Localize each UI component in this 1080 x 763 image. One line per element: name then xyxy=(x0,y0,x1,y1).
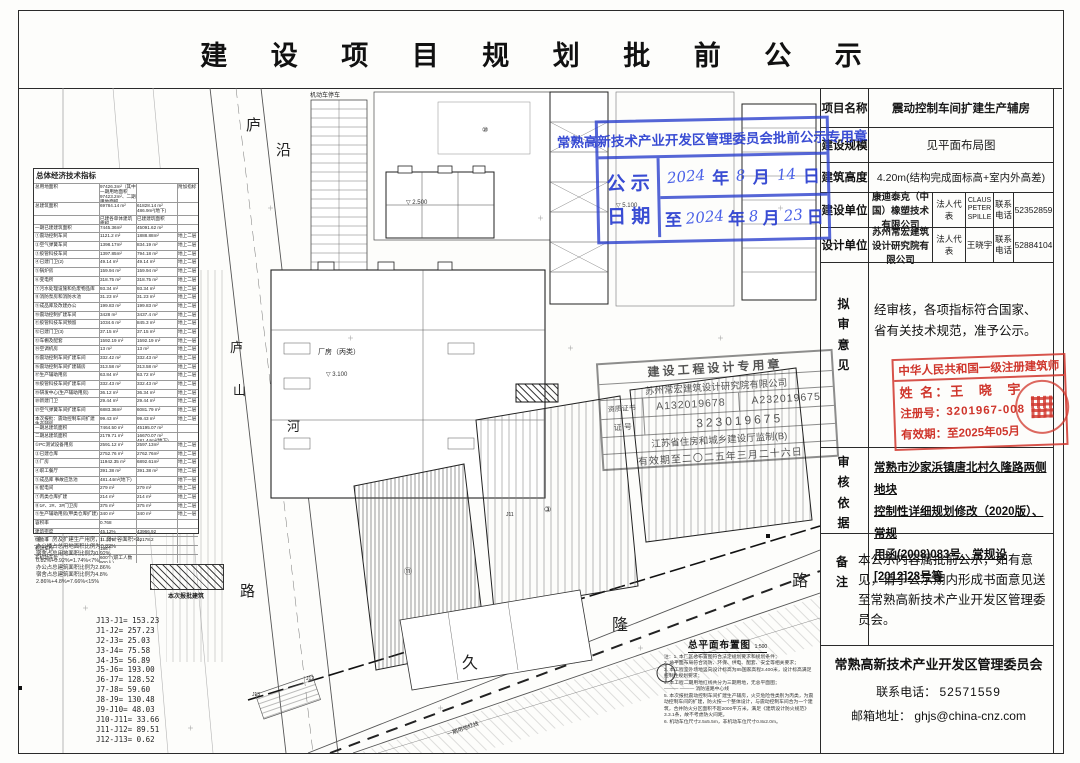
footer-tel-label: 联系电话： xyxy=(876,685,936,699)
stats-note-line: 办公楼占总用地面积比例为0.82% xyxy=(36,544,188,551)
j11-label: J11 xyxy=(506,512,514,518)
stats-row: ⑪胶管科技车间预留 1034.6 m² 845.3 m² 地上二层 xyxy=(34,319,198,328)
blue-stamp-label-line1: 公 示 xyxy=(599,168,658,196)
blue-stamp-date-from: 2024 年 8 月 14 日 xyxy=(660,155,828,199)
date1-month-unit: 月 xyxy=(752,162,770,187)
stats-row: ⑭空调机房 13 m² 13 m² 地上二层 xyxy=(34,345,198,354)
new-building-hatched xyxy=(516,384,558,402)
boundary-segment: J13-J1= 153.23 xyxy=(96,616,159,626)
date2-year-unit: 年 xyxy=(728,204,746,229)
date2-day: 23 xyxy=(783,206,804,226)
building-number-3: ③ xyxy=(544,505,551,514)
stats-row: ⑤锅炉房 159.94 m² 159.94 m² 地上二层 xyxy=(34,267,198,276)
architect-valid: 至2025年05月 xyxy=(947,422,1020,441)
panel-footer: 常熟高新技术产业开发区管理委员会 联系电话： 52571559 邮箱地址： gh… xyxy=(824,654,1053,724)
boundary-segment: J5-J6= 193.00 xyxy=(96,665,159,675)
project-name-value: 震动控制车间扩建生产辅房 xyxy=(869,88,1053,127)
panel-row-line xyxy=(820,645,1053,646)
stats-table: 总体经济技术指标 总用地面积 97426.3m²（其中一期用地面积97423.2… xyxy=(33,168,199,534)
stats-row: ⑥变电所 318.75 m² 318.75 m² 地上二层 xyxy=(34,276,198,285)
stats-row: 一期已建建筑面积 7445.36m² 45091.62 m² xyxy=(34,224,198,233)
designer-rep-name: 王晓宇 xyxy=(966,227,993,262)
stats-row: ③厂房 11942.35 m² 6892.61m² 地上二层 xyxy=(34,458,198,467)
stats-row: ②已建仓库 2752.76 m² 2762.76m² 地上二层 xyxy=(34,450,198,459)
date1-year-unit: 年 xyxy=(712,163,730,188)
stats-note-line: 注：厂房及扩建生产用房，厂房计容面积×2， xyxy=(36,537,188,544)
plan-notes: 注：1. 本厂区总布置图符合法定规划要求和规划条件；2. 总平面布局符合消防、环… xyxy=(664,655,816,726)
architect-name: 王 晓 宇 xyxy=(950,378,1027,400)
architect-name-label: 姓 名： xyxy=(899,381,950,402)
review-section-label: 拟审意见 xyxy=(836,294,851,376)
architect-no: 3201967-008 xyxy=(946,403,1025,418)
basis-line: 控制性详细规划修改（2020版）、常规 xyxy=(874,502,1052,546)
spot-elevation-3100: ▽ 3.100 xyxy=(326,372,348,378)
stats-row: 二期总建筑面积 2179.71 m² 16670.07 m² 481.44m²(… xyxy=(34,432,198,441)
stats-note-line: 宿舍占总用地面积比例为0.92% xyxy=(36,551,188,558)
stats-row: ⑦污水处理设施和危废物品库 93.34 m² 93.34 m² 地上二层 xyxy=(34,285,198,294)
footer-org: 常熟高新技术产业开发区管理委员会 xyxy=(824,654,1053,673)
boundary-segment: J9-J10= 48.03 xyxy=(96,705,159,715)
stats-title: 总体经济技术指标 xyxy=(34,169,198,183)
plan-note-line: 3. 本工程室外场地竖向设计标高为85国家高程3.400米，设计标高满足控制性规… xyxy=(664,668,816,681)
designer-tel: 52884104 xyxy=(1014,227,1053,262)
builder-company: 康迪泰克（中国）橡塑技术有限公司 xyxy=(869,192,932,227)
stats-row: ⑧消防泵房和消防水池 31.23 m² 31.23 m² 地上二层 xyxy=(34,293,198,302)
factory-label: 厂房（丙类） xyxy=(318,347,360,356)
boundary-segment: J2-J3= 25.03 xyxy=(96,636,159,646)
plan-title: 总平面布置图 1:500 xyxy=(688,637,767,653)
stats-row: ④职工餐厅 391.38 m² 391.38 m² 地上二层 xyxy=(34,467,198,476)
stats-row: 一期总建筑面积 7464.50 m² 45195.07 m² xyxy=(34,424,198,433)
road-char-long: 隆 xyxy=(612,616,628,634)
review-text: 经审核，各项指标符合国家、省有关技术规范，准予公示。 xyxy=(874,300,1046,341)
stats-row: ⑱胶管科技车间扩建车间 332.43 m² 332.43 m² 地上二层 xyxy=(34,380,198,389)
date2-year: 2024 xyxy=(685,206,725,227)
stats-row: ①震动控制车间 1121.2 m² 1888.88m² 地上二层 xyxy=(34,232,198,241)
road-char-yan: 沿 xyxy=(276,142,291,159)
stats-row: ⑲研发中心(生产辅助用房) 36.12 m² 36.34 m² 地上二层 xyxy=(34,389,198,398)
page-title: 建 设 项 目 规 划 批 前 公 示 xyxy=(18,34,1062,73)
stats-row: 容积率 0.768 xyxy=(34,519,198,528)
road-char-lu-south: 路 xyxy=(792,572,808,590)
footer-tel-line: 联系电话： 52571559 xyxy=(824,683,1053,700)
stats-row: ①PC测试设备用房 2591.12 m² 2597.13m² 地上二层 xyxy=(34,441,198,450)
parking-label: 机动车停车 xyxy=(310,91,340,99)
plan-scale: 1:500 xyxy=(755,644,768,650)
boundary-segment: J11-J12= 89.51 xyxy=(96,725,159,735)
stats-row: 总用地面积 97426.3m²（其中一期用地面积97423.2m²、二期用地面积… xyxy=(34,183,198,202)
stats-row: 本次报批：震动控制车间扩建生产辅房 99.43 m² 99.43 m² 地上二层 xyxy=(34,415,198,424)
plan-note-line: 5. 本次报批震动控制车间扩建生产辅房，火灾危险性类别为丙类，为震动控制车间的扩… xyxy=(664,694,816,720)
stats-row: ⑤成品库 事故应急池 481.44m²(地下) 地下一层 xyxy=(34,476,198,485)
boundary-segment: J6-J7= 128.52 xyxy=(96,675,159,685)
blue-stamp-date-to: 至 2024 年 8 月 23 日 xyxy=(660,196,828,237)
designer-rep-label: 法人代表 xyxy=(933,227,965,262)
stats-row: ⑮震动控制车间扩建车间 332.42 m² 332.43 m² 地上二层 xyxy=(34,354,198,363)
remark-text: 本公示内容属批前公示，如有意见，请于公示期内形成书面意见送至常熟高新技术产业开发… xyxy=(858,550,1054,630)
blue-notice-stamp: 常熟高新技术产业开发区管理委员会批前公示专用章 公 示 日 期 2024 年 8… xyxy=(595,116,832,245)
stats-row: ⑥配电间 279 m² 279 m² 地上二层 xyxy=(34,484,198,493)
designer-tel-label: 联系 电话 xyxy=(994,227,1013,262)
stats-row: ⑨生产辅助用房(甲类仓库扩建) 340 m² 340 m² 地上一层 xyxy=(34,510,198,519)
stats-row: ⑨成品库及改建办公 199.83 m² 199.83 m² 地上二层 xyxy=(34,302,198,311)
date2-month: 8 xyxy=(748,207,759,226)
boundary-segment: J4-J5= 56.89 xyxy=(96,656,159,666)
stats-row: ⑩震动控制扩建车间 3428 m² 3437.4 m² 地上二层 xyxy=(34,311,198,320)
stats-row: ②空气弹簧车间 1398.17m² 834.19 m² 地上二层 xyxy=(34,241,198,250)
stats-row: 建筑密度 45.12% 43966.92 xyxy=(34,528,198,537)
footer-mail-line: 邮箱地址： ghjs@china-cnz.com xyxy=(824,707,1053,724)
stats-row: ⑬车棚及配套 1592.19 m² 1592.19 m² 地上一层 xyxy=(34,337,198,346)
road-char-lu1: 庐 xyxy=(246,117,261,134)
designer-company: 苏州常宏建筑设计研究院有限公司 xyxy=(869,227,932,262)
builder-tel: 52352859 xyxy=(1014,192,1053,227)
architect-no-label: 注册号： xyxy=(900,404,947,422)
stats-row: 已建各单体建筑面积 已建建筑面积 xyxy=(34,215,198,224)
builder-rep-name: CLAUS PETER SPILLE xyxy=(966,192,993,227)
stats-row: ㉑空气弹簧车间扩建车间 6883.36m² 6081.79 m² 地上二层 xyxy=(34,406,198,415)
blue-stamp-date-label: 公 示 日 期 xyxy=(599,158,662,238)
date1-day: 14 xyxy=(776,165,797,185)
road-char-jiu: 久 xyxy=(462,654,478,672)
j12-label: J12 xyxy=(306,676,314,682)
river-char-lu: 庐 xyxy=(230,340,243,355)
boundary-segment-list: J13-J1= 153.23J1-J2= 257.23J2-J3= 25.03J… xyxy=(96,616,159,745)
boundary-segment: J8-J9= 130.48 xyxy=(96,695,159,705)
stats-row: ⑯震动控制车间扩建辅房 313.58 m² 313.58 m² 地上二层 xyxy=(34,363,198,372)
footer-tel-value: 52571559 xyxy=(939,685,1000,699)
stats-row: 总建筑面积 69784.14 m² 61828.14 m² 486.9m²(地下… xyxy=(34,202,198,215)
road-char-lu-west: 路 xyxy=(240,583,255,600)
scale-value: 见平面布局图 xyxy=(869,127,1053,162)
basis-section-label: 审核依据 xyxy=(836,452,851,534)
plan-note-line: 2. 总平面布局符合消防、环保、供电、配套、安全等相关要求； xyxy=(664,661,816,667)
boundary-segment: J1-J2= 257.23 xyxy=(96,626,159,636)
date1-day-unit: 日 xyxy=(803,161,821,186)
spot-elevation-2500: ▽ 2.500 xyxy=(406,200,428,206)
panel-row-line xyxy=(820,262,1053,263)
legend-hatch-swatch xyxy=(150,564,224,590)
stats-row: ⑳新建门卫 29.44 m² 29.44 m² 地上二层 xyxy=(34,397,198,406)
height-value: 4.20m(结构完成面标高+室内外高差) xyxy=(869,162,1053,192)
basis-line: 常熟市沙家浜镇唐北村久隆路两侧地块 xyxy=(874,458,1052,502)
architect-valid-label: 有效期： xyxy=(901,425,948,443)
river-char-he: 河 xyxy=(287,419,300,434)
builder-tel-label: 联系 电话 xyxy=(994,192,1013,227)
boundary-segment: J10-J11= 33.66 xyxy=(96,715,159,725)
footer-mail-label: 邮箱地址： xyxy=(851,709,911,723)
north-lot-number: ⑩ xyxy=(482,126,488,134)
stats-row: ③胶管科技车间 1397.85m² 794.18 m² 地上二层 xyxy=(34,250,198,259)
architect-stamp: 中华人民共和国一级注册建筑师 姓 名： 王 晓 宇 注册号： 3201967-0… xyxy=(891,353,1068,451)
stats-row: ⑧1#、2#、3#门卫房 375 m² 375 m² 地上二层 xyxy=(34,502,198,511)
design-institute-stamp: 建设工程设计专用章 苏州常宏建筑设计研究院有限公司 资质证书 A13201967… xyxy=(596,349,839,471)
builder-rep-label: 法人代表 xyxy=(933,192,965,227)
stats-row: ⑦丙类仓库扩建 214 m² 214 m² 地上二层 xyxy=(34,493,198,502)
river-char-shan: 山 xyxy=(233,383,246,398)
date1-month: 8 xyxy=(735,166,746,185)
j13-label: J13 xyxy=(252,692,260,698)
stats-row: ⑰生产辅助用房 63.84 m² 63.72 m² 地上二层 xyxy=(34,371,198,380)
remark-section-label: 备注 xyxy=(836,552,851,593)
building-number-11: ⑪ xyxy=(404,567,412,576)
date1-year: 2024 xyxy=(666,166,706,187)
boundary-segment: J12-J13= 0.62 xyxy=(96,735,159,745)
plan-title-text: 总平面布置图 xyxy=(688,640,751,651)
legend-label: 本次报批建筑 xyxy=(136,591,236,600)
boundary-segment: J7-J8= 59.60 xyxy=(96,685,159,695)
plan-note-line: 6. 机动车位尺寸2.5x5.5m，非机动车位尺寸0.8x2.0m。 xyxy=(664,720,816,726)
blue-stamp-header: 常熟高新技术产业开发区管理委员会批前公示专用章 xyxy=(598,119,827,160)
date2-day-unit: 日 xyxy=(806,202,824,227)
stats-row: ④已建门卫(2) 49.14 m² 49.14 m² 地上二层 xyxy=(34,258,198,267)
notice-sheet: 建 设 项 目 规 划 批 前 公 示 xyxy=(0,0,1080,763)
blue-stamp-label-line2: 日 期 xyxy=(599,201,658,229)
date2-month-unit: 月 xyxy=(762,203,780,228)
stats-rows: 总用地面积 97426.3m²（其中一期用地面积97423.2m²、二期用地面积… xyxy=(34,183,198,563)
date2-to: 至 xyxy=(665,205,683,230)
stats-row: ⑫已建门卫(3) 37.15 m² 37.15 m² 地上二层 xyxy=(34,328,198,337)
boundary-segment: J3-J4= 75.58 xyxy=(96,646,159,656)
footer-mail-value: ghjs@china-cnz.com xyxy=(914,709,1026,723)
